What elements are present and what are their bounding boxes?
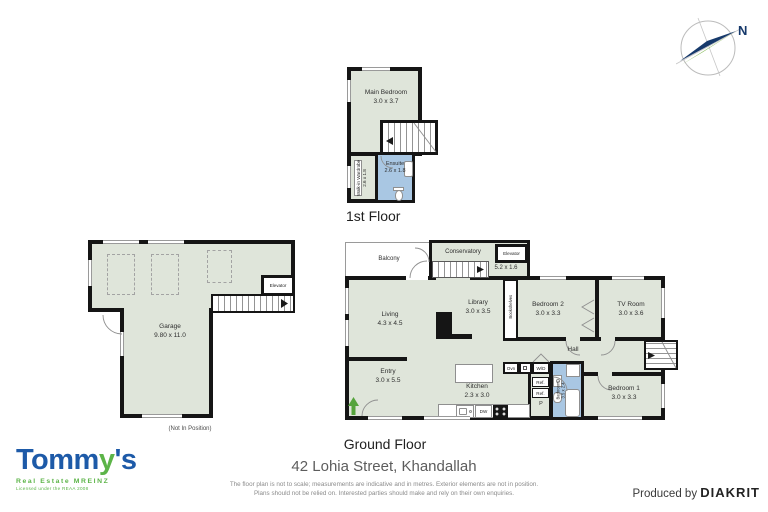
tommys-wordmark: Tommy's <box>16 446 137 475</box>
compass-north-label: N <box>738 23 747 38</box>
ensuite-toilet-bowl <box>395 190 403 201</box>
balcony-door-opening <box>406 276 428 280</box>
sink-tap <box>469 410 472 413</box>
window <box>362 67 390 71</box>
sink-basin <box>459 408 467 415</box>
oven-box: Ovn <box>503 362 519 374</box>
room-label-balcony: Balcony <box>359 255 419 263</box>
room-label-kitchen: Kitchen 2.3 x 3.0 <box>447 383 507 401</box>
room-label-main-bedroom: Main Bedroom 3.0 x 3.7 <box>356 89 416 107</box>
room-label-tv-room: TV Room 3.0 x 3.6 <box>601 301 661 319</box>
window <box>345 320 349 346</box>
appliance-icon <box>523 366 527 370</box>
address: 42 Lohia Street, Khandallah <box>224 458 544 475</box>
disclaimer-line1: The floor plan is not to scale; measurem… <box>224 480 544 489</box>
garage-stairs <box>211 294 295 313</box>
garage-note: (Not In Position) <box>130 425 250 433</box>
room-label-conservatory: Conservatory <box>433 248 493 256</box>
parking-spot <box>207 250 232 283</box>
window <box>661 384 665 408</box>
window <box>103 240 139 244</box>
garage-opening <box>124 306 209 318</box>
shower <box>566 364 580 377</box>
parking-spot <box>107 254 135 295</box>
first-floor-stairs <box>380 120 438 155</box>
window <box>424 416 470 420</box>
compass-ring <box>681 21 735 75</box>
disclaimer-line2: Plans should not be relied on. Intereste… <box>224 489 544 498</box>
room-label-bedroom2: Bedroom 2 3.0 x 3.3 <box>518 301 578 319</box>
garage-elevator: Elevator <box>261 275 295 296</box>
disclaimer: The floor plan is not to scale; measurem… <box>224 480 544 499</box>
washer-dryer-box: W/D <box>532 362 550 374</box>
room-label-bathroom: Bathroom 3.5 x 2.4 <box>542 380 580 400</box>
diakrit-brand: DIAKRIT <box>700 485 760 500</box>
appliance-box <box>519 362 532 374</box>
window <box>540 276 566 280</box>
room-label-entry: Entry 3.0 x 5.5 <box>358 368 418 386</box>
room-label-living: Living 4.3 x 4.5 <box>360 311 420 329</box>
window <box>368 416 402 420</box>
kitchen-island <box>455 364 493 383</box>
door-opening-tv-room <box>601 337 615 341</box>
fireplace-hearth <box>436 334 472 339</box>
window <box>148 240 184 244</box>
door-opening-bedroom1 <box>598 372 612 376</box>
conservatory-stairs <box>432 261 489 278</box>
tommys-license: Licensed under the REAA 2008 <box>16 486 137 491</box>
wall-bedroom2-tv <box>595 278 599 340</box>
window <box>88 260 92 286</box>
wall-hall-bedroom1 <box>583 372 665 376</box>
window <box>661 288 665 318</box>
dishwasher: DW <box>475 405 492 418</box>
ground-elevator: Elevator <box>495 244 528 263</box>
window <box>347 80 351 102</box>
floorplan-page: N Main Bedroom 3.0 x 3.7 Ensuite 2.6 x 1… <box>0 0 768 512</box>
window <box>598 416 642 420</box>
room-label-hall: Hall <box>558 346 588 355</box>
first-floor-title: 1st Floor <box>346 208 400 224</box>
tommys-logo: Tommy's Real Estate MREINZ Licensed unde… <box>16 446 137 491</box>
window <box>142 414 182 418</box>
room-label-garage: Garage 9.80 x 11.0 <box>138 323 202 341</box>
room-label-walk-in-wardrobe: Walk-in Wardrobe 2.6 x 1.8 <box>337 168 387 188</box>
stove <box>493 405 508 418</box>
window <box>345 288 349 314</box>
wall-entry-living <box>345 357 407 361</box>
wall-hall <box>503 337 665 341</box>
compass-needle-navy <box>680 31 736 61</box>
window <box>612 276 644 280</box>
ground-floor-stairs <box>644 340 678 370</box>
compass: N <box>676 12 760 80</box>
room-label-bedroom1: Bedroom 1 3.0 x 3.3 <box>594 385 654 403</box>
produced-by: Produced by DIAKRIT <box>540 485 760 500</box>
door-opening-bedroom2 <box>566 337 580 341</box>
pantry-label: P <box>533 401 549 408</box>
window <box>120 332 124 356</box>
parking-spot <box>151 254 179 295</box>
ground-floor-title: Ground Floor <box>305 436 465 452</box>
conservatory-dims: 5.2 x 1.6 <box>488 264 524 272</box>
tommys-tagline: Real Estate MREINZ <box>16 478 137 485</box>
